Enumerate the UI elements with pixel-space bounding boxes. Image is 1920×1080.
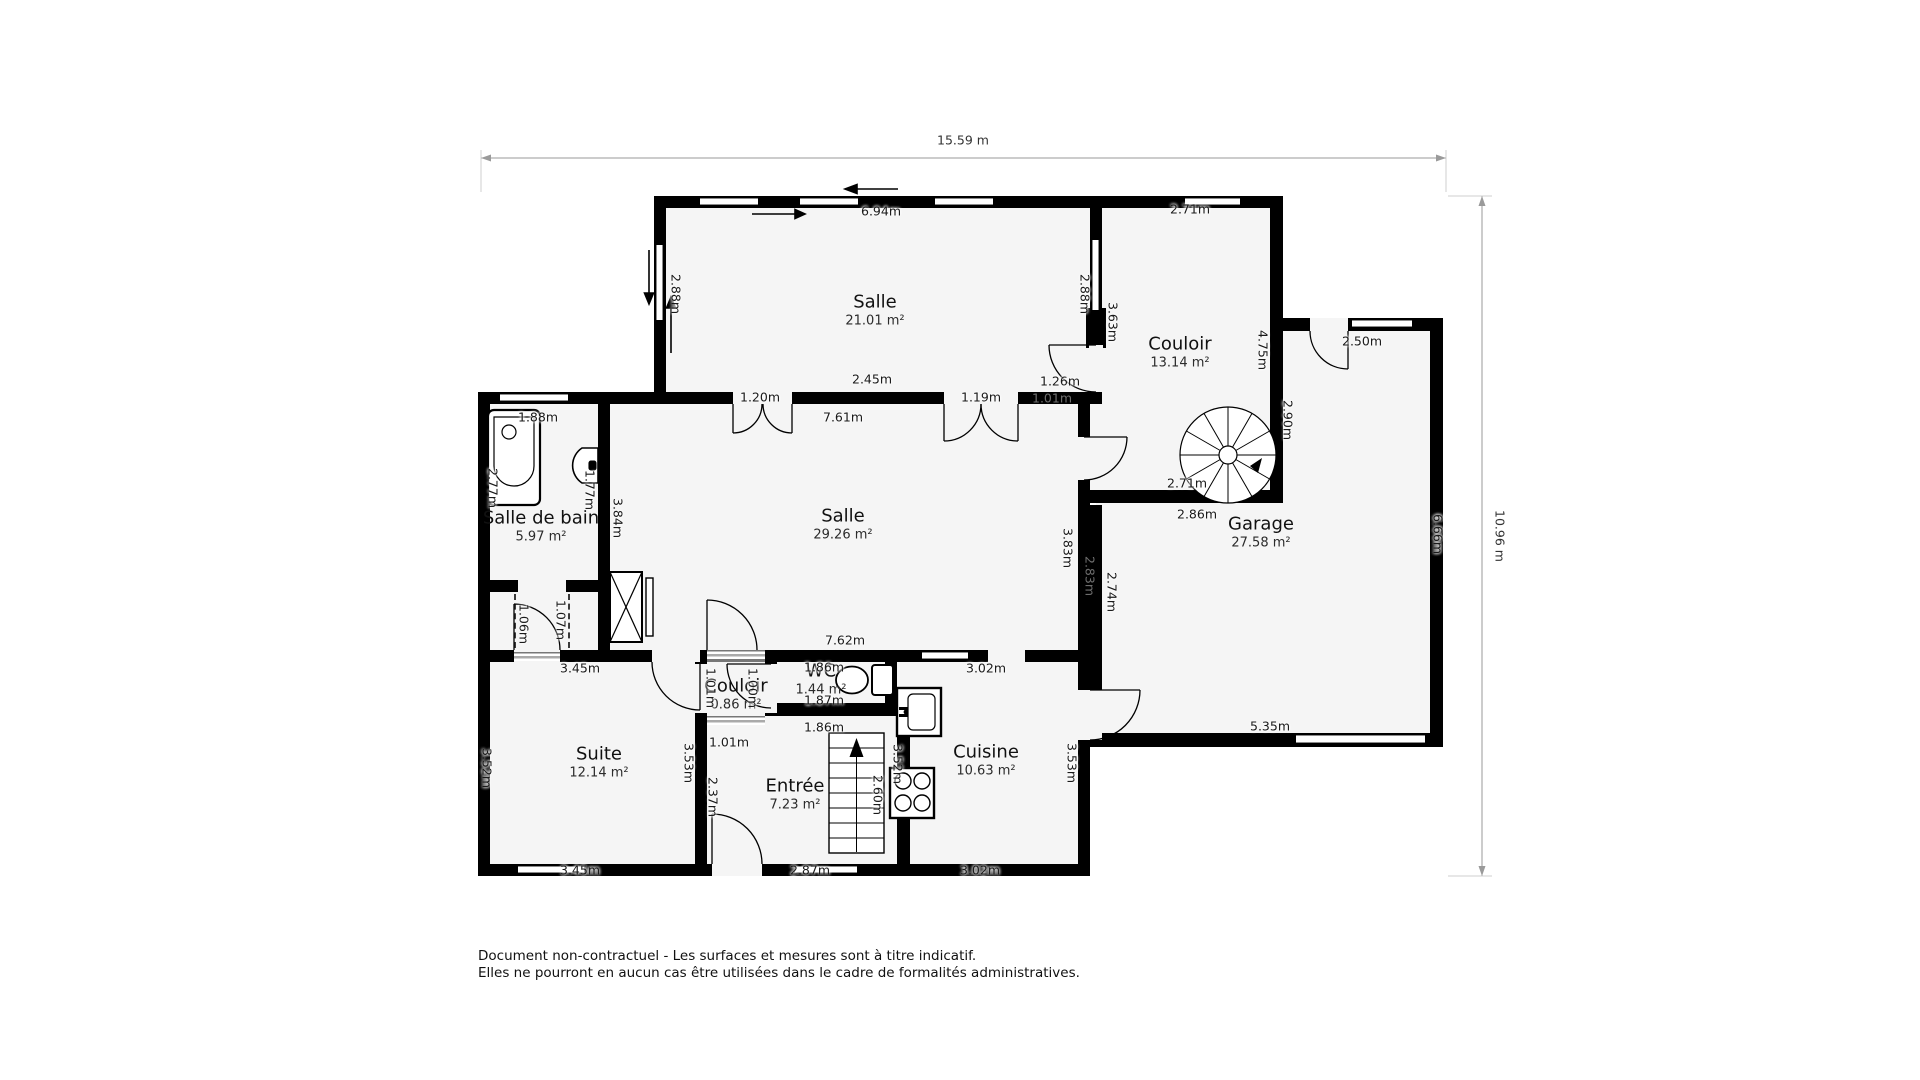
dimension-label: 3.02m (960, 863, 1000, 878)
dimension-label: 6.66m (1431, 514, 1446, 554)
dimension-label: 1.19m (961, 390, 1001, 405)
dimension-label: 3.52m (891, 744, 906, 784)
dimension-label: 7.61m (823, 410, 863, 425)
dimension-label: 1.07m (554, 600, 569, 640)
dimension-label: 1.01m (704, 668, 719, 708)
dimension-label: 1.87m (804, 693, 844, 708)
dimension-label: 6.94m (861, 204, 901, 219)
dimension-label: 1.20m (740, 390, 780, 405)
dimension-label: 2.88m (669, 274, 684, 314)
dimension-label: 2.60m (871, 775, 886, 815)
dimension-label: 5.35m (1250, 719, 1290, 734)
dimension-label: 2.50m (1342, 334, 1382, 349)
disclaimer-line-2: Elles ne pourront en aucun cas être util… (478, 965, 1080, 982)
dimension-label: 2.77m (486, 468, 501, 508)
dimension-label: 3.02m (966, 661, 1006, 676)
dimension-label: 3.45m (560, 863, 600, 878)
dimension-label: 1.77m (583, 470, 598, 510)
disclaimer-line-1: Document non-contractuel - Les surfaces … (478, 948, 1080, 965)
dimension-label: 1.86m (804, 660, 844, 675)
dimension-label: 1.88m (518, 410, 558, 425)
dimension-label: 1.86m (804, 720, 844, 735)
dimension-labels-layer: 6.94m2.88m2.88m3.63m2.71m4.75m2.90m2.50m… (0, 0, 1920, 1080)
dimension-label: 3.83m (1061, 528, 1076, 568)
dimension-label: 2.45m (852, 372, 892, 387)
dimension-label: 2.71m (1170, 202, 1210, 217)
dimension-label: 7.62m (825, 633, 865, 648)
dimension-label: 2.74m (1105, 572, 1120, 612)
dimension-label: 1.01m (709, 735, 749, 750)
dimension-label: 2.71m (1167, 476, 1207, 491)
dimension-label: 1.26m (1040, 374, 1080, 389)
dimension-label: 2.87m (790, 863, 830, 878)
dimension-label: 2.86m (1177, 507, 1217, 522)
floor-plan: 15.59 m 10.96 m Salle21.01 m²Couloir13.1… (0, 0, 1920, 1080)
dimension-label: 3.53m (1065, 743, 1080, 783)
dimension-label: 3.52m (480, 748, 495, 788)
dimension-label: 3.53m (682, 743, 697, 783)
dimension-label: 1.00m (746, 668, 761, 708)
dimension-label: 2.90m (1281, 400, 1296, 440)
dimension-label: 2.88m (1078, 274, 1093, 314)
dimension-label: 3.45m (560, 661, 600, 676)
dimension-label: 3.63m (1106, 302, 1121, 342)
dimension-label: 3.84m (611, 498, 626, 538)
disclaimer: Document non-contractuel - Les surfaces … (478, 948, 1080, 982)
dimension-label: 4.75m (1256, 330, 1271, 370)
dimension-label: 2.37m (706, 777, 721, 817)
dimension-label: 1.06m (517, 604, 532, 644)
dimension-label: 2.83m (1083, 556, 1098, 596)
dimension-label: 1.01m (1032, 391, 1072, 406)
